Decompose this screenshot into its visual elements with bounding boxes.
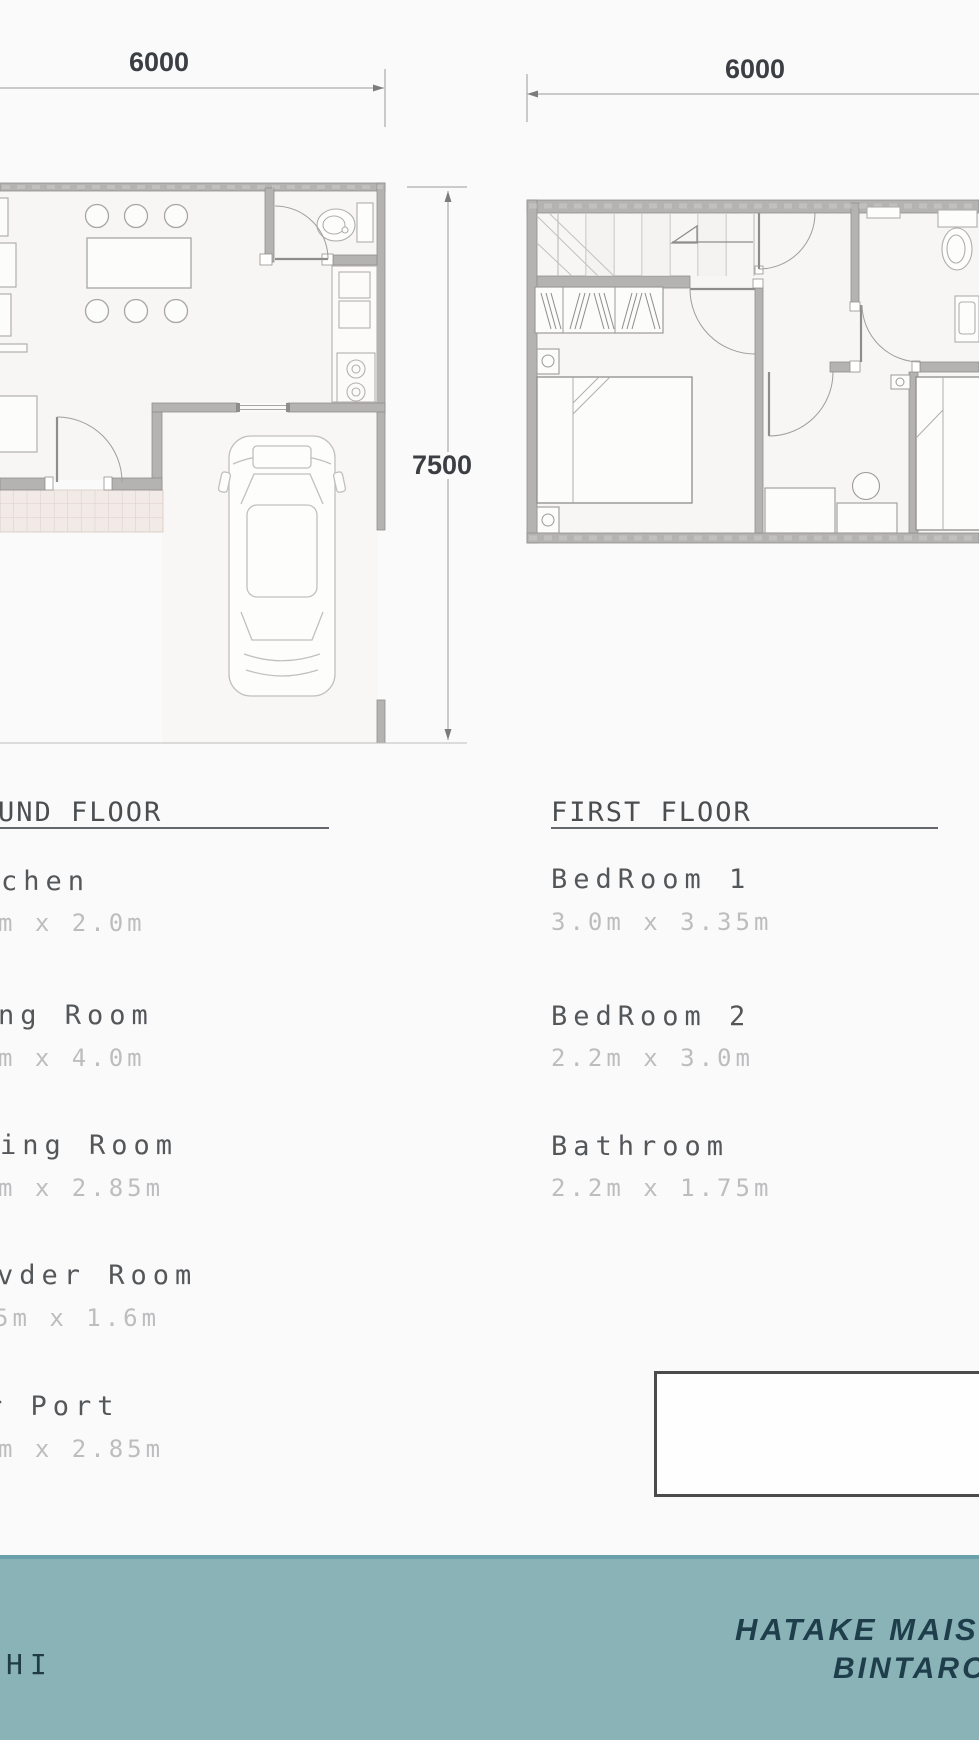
- dim-label-ground-depth: 7500: [409, 452, 475, 479]
- room-size-dining: m x 4.0m: [0, 1046, 146, 1070]
- room-size-bathroom: 2.2m x 1.75m: [551, 1176, 772, 1200]
- window: [236, 403, 290, 412]
- room-label-carport: r Port: [0, 1393, 120, 1420]
- brand-name-line2: BINTARO: [833, 1654, 979, 1684]
- info-box: [654, 1371, 979, 1497]
- room-size-kitchen: m x 2.0m: [0, 911, 146, 935]
- dim-label-first-width: 6000: [722, 56, 788, 83]
- first-floor-heading: FIRST FLOOR: [551, 799, 752, 826]
- room-size-powder: 5m x 1.6m: [0, 1306, 160, 1330]
- ground-floor-plan: [0, 183, 467, 743]
- ground-floor-heading-rule: [0, 827, 329, 829]
- room-size-bedroom2: 2.2m x 3.0m: [551, 1046, 754, 1070]
- room-label-dining: ng Room: [0, 1002, 154, 1029]
- dining-set: [86, 205, 192, 323]
- dimension-ground-width: [0, 69, 385, 127]
- room-label-kitchen: chen: [1, 868, 90, 895]
- wardrobe: [535, 287, 663, 333]
- footer-bar: HI HATAKE MAISON BINTARO: [0, 1555, 979, 1740]
- room-size-carport: m x 2.85m: [0, 1437, 164, 1461]
- room-size-living: m x 2.85m: [0, 1176, 164, 1200]
- room-label-living: ing Room: [0, 1132, 178, 1159]
- floor-plans-drawing: [0, 0, 979, 780]
- room-label-powder: vder Room: [0, 1262, 197, 1289]
- brand-name-line1: HATAKE MAISON: [735, 1614, 979, 1645]
- porch-tiles: [0, 490, 163, 532]
- room-label-bedroom1: BedRoom 1: [551, 866, 751, 893]
- first-floor-heading-rule: [551, 827, 938, 829]
- dim-label-ground-width: 6000: [126, 49, 192, 76]
- room-label-bedroom2: BedRoom 2: [551, 1003, 751, 1030]
- footer-left-text: HI: [6, 1648, 54, 1681]
- ground-floor-heading: UND FLOOR: [0, 799, 162, 826]
- kitchen-counter: [332, 266, 377, 402]
- room-size-bedroom1: 3.0m x 3.35m: [551, 910, 772, 934]
- car-icon: [218, 436, 346, 696]
- first-floor-plan: [527, 200, 979, 543]
- floorplan-sheet: 6000 6000 7500 UND FLOOR chen m x 2.0m n…: [0, 0, 979, 1740]
- room-label-bathroom: Bathroom: [551, 1133, 729, 1160]
